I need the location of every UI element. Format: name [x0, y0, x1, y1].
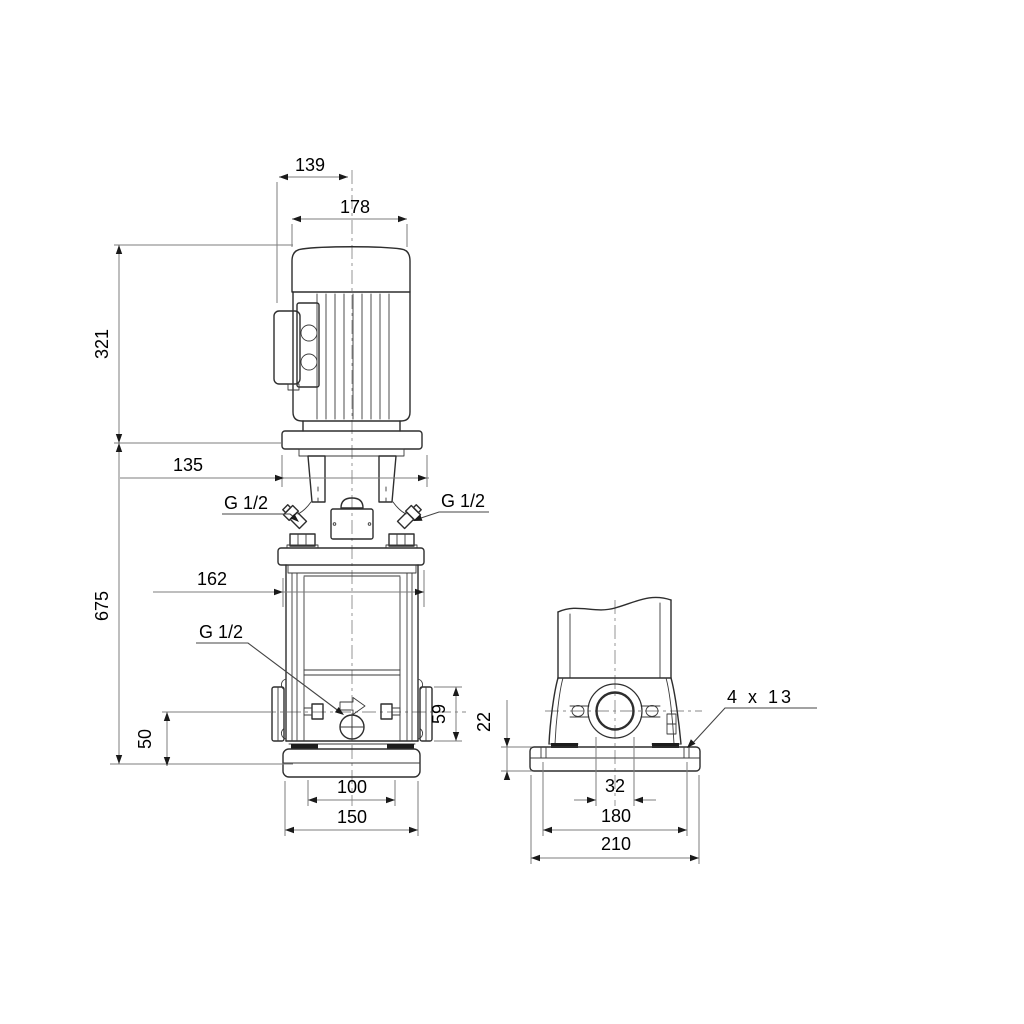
side-tab-detail	[667, 714, 676, 734]
foot-pad-right	[387, 744, 414, 749]
motor-top-cap	[292, 247, 410, 292]
vent-left-label: G 1/2	[224, 493, 268, 513]
dim-675: 675	[92, 443, 293, 764]
body-inner-walls	[570, 603, 660, 678]
dim-32-label: 32	[605, 776, 625, 796]
terminal-box-cover	[274, 311, 300, 384]
dimension-annotations: 139 178 321 675 135 162	[92, 155, 817, 864]
coupling-screw-left	[333, 523, 336, 526]
drain-label: G 1/2	[199, 622, 243, 642]
dim-180-label: 180	[601, 806, 631, 826]
gauge-plug-right	[381, 704, 392, 719]
motor	[292, 247, 410, 421]
body-outer-walls	[558, 600, 671, 678]
head-flange	[278, 548, 424, 565]
stool-leg-left	[308, 456, 325, 502]
label-bolt-holes: 4 x 13	[687, 687, 817, 748]
dim-135: 135	[120, 455, 429, 487]
base-plate-front	[283, 744, 420, 777]
drawing-canvas: 139 178 321 675 135 162	[0, 0, 1024, 1024]
dim-162: 162	[153, 569, 424, 607]
dim-139: 139	[277, 155, 348, 303]
motor-flange-subplate	[299, 449, 404, 456]
bolt-hole-right	[684, 747, 689, 758]
motor-body	[293, 292, 410, 421]
nut-left	[290, 534, 315, 546]
dim-321: 321	[92, 245, 293, 443]
port-flange-left	[272, 687, 284, 741]
dim-675-label: 675	[92, 591, 112, 621]
dim-22: 22	[474, 700, 532, 780]
dim-59: 59	[429, 687, 462, 741]
dim-59-label: 59	[429, 704, 449, 724]
pump-dimensional-drawing: 139 178 321 675 135 162	[0, 0, 1024, 1024]
dim-135-label: 135	[173, 455, 203, 475]
dim-180: 180	[543, 762, 687, 836]
label-vent-left: G 1/2	[222, 493, 299, 522]
break-line	[558, 597, 671, 612]
terminal-box	[274, 303, 319, 390]
stool-leg-right	[379, 456, 396, 502]
pump-head	[278, 548, 424, 576]
cable-gland-hole-top	[301, 325, 317, 341]
dim-162-label: 162	[197, 569, 227, 589]
nut-right	[389, 534, 414, 546]
dim-50-label: 50	[135, 729, 155, 749]
drain-plug	[340, 715, 364, 739]
dim-210-label: 210	[601, 834, 631, 854]
cable-gland-hole-bottom	[301, 354, 317, 370]
foot-pad-left	[291, 744, 318, 749]
dim-50: 50	[135, 712, 272, 766]
label-vent-right: G 1/2	[413, 491, 489, 521]
dim-321-label: 321	[92, 329, 112, 359]
dim-178-label: 178	[340, 197, 370, 217]
dim-100: 100	[308, 777, 395, 806]
dim-139-label: 139	[295, 155, 325, 175]
bolt-hole-left	[541, 747, 546, 758]
dim-150-label: 150	[337, 807, 367, 827]
gauge-plug-left	[312, 704, 323, 719]
bolt-holes-label: 4 x 13	[727, 687, 794, 707]
vent-right-label: G 1/2	[441, 491, 485, 511]
dim-100-label: 100	[337, 777, 367, 797]
coupling-screw-right	[368, 523, 371, 526]
motor-cooling-fins	[317, 294, 389, 419]
label-drain: G 1/2	[196, 622, 344, 715]
dim-22-label: 22	[474, 712, 494, 732]
dim-178: 178	[292, 197, 407, 247]
motor-neck	[303, 421, 400, 431]
